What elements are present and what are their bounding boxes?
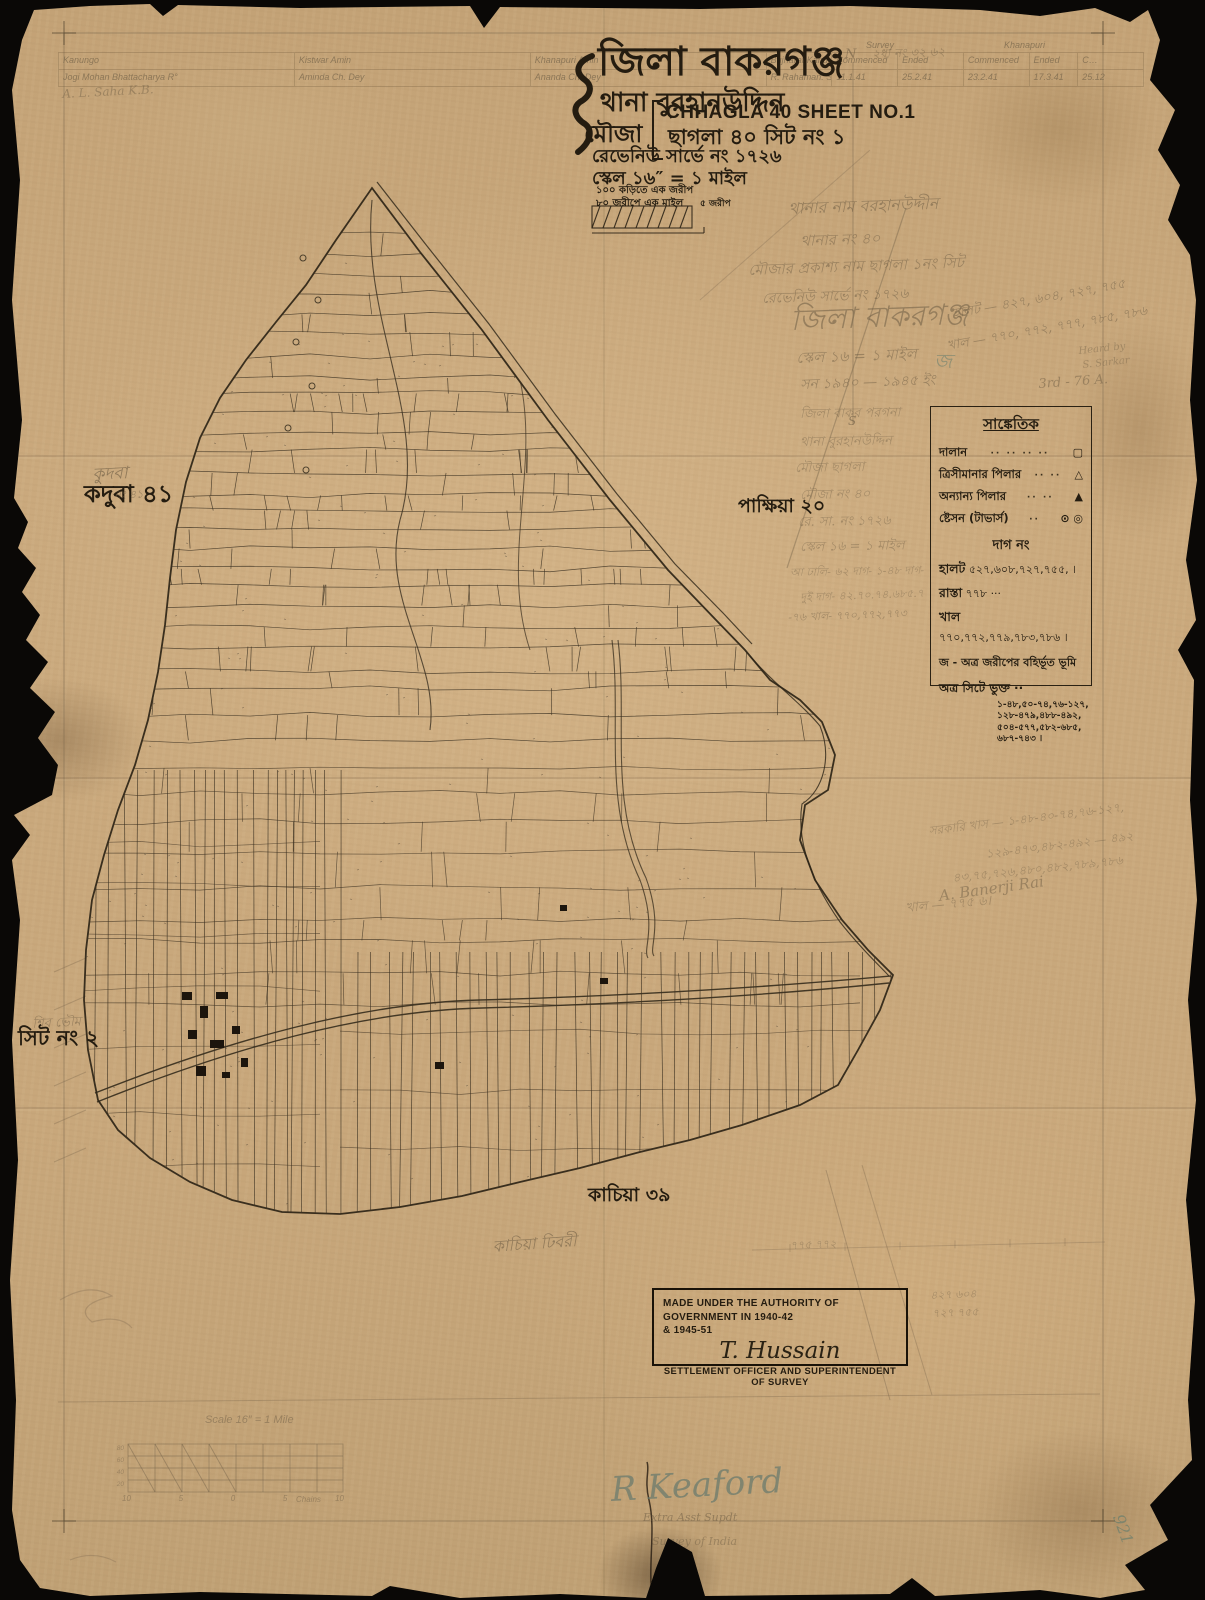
- conversion-line-2: ৮০ জরীপে এক মাইল: [596, 199, 683, 209]
- pencil-annotation: Heard by: [1078, 341, 1126, 357]
- legend-row: দালান ·· ·· ·· ·· ▢: [939, 444, 1083, 463]
- legend-note-j: জ - অত্র জরীপের বহির্ভূত ভূমি: [939, 654, 1083, 673]
- mouza-name-english: CHHAGLA 40 SHEET NO.1: [666, 103, 915, 122]
- scale-bottom-tick: 10: [122, 1494, 131, 1503]
- pencil-annotation: জিলা বাকরগঞ্জ: [790, 299, 969, 337]
- mouza-label: মৌজা: [584, 122, 642, 146]
- pencil-annotation: কাচিয়া ঢিবরী: [492, 1232, 577, 1255]
- legend-row-label: অন্যান্য পিলার: [939, 488, 1006, 507]
- age-stains: [0, 0, 1205, 1600]
- conversion-line-1: ১০০ কড়িতে এক জরীপ: [596, 186, 693, 196]
- legend-row-label: ষ্টেসন (টাভার্স): [939, 510, 1009, 529]
- legend-sheet-included-label: অত্র সিটে ভুক্ত ··: [939, 680, 1083, 700]
- legend-entry-value: ৭৭০,৭৭২,৭৭৯,৭৮৩,৭৮৬ ।: [939, 631, 1068, 644]
- surveyor-org: Survey of India: [652, 1536, 737, 1548]
- legend-row-symbol: ▲: [1075, 490, 1083, 503]
- legend-row-label: ত্রিসীমানার পিলার: [939, 466, 1021, 485]
- scale-left-tick: 20: [112, 1479, 124, 1491]
- legend-row-dots: ·· ··: [1021, 471, 1074, 481]
- district-title: জিলা বাকরগঞ্জ: [598, 42, 845, 82]
- pencil-annotation: মৌজা নং ৪০: [800, 488, 870, 504]
- table-value-cell: Aminda Ch. Dey: [294, 70, 530, 86]
- scale-left-tick: 40: [112, 1467, 124, 1479]
- table-value-cell: 23.2.41: [963, 70, 1029, 86]
- legend-title: সাঙ্কেতিক: [939, 413, 1083, 438]
- stamp-signature: T. Hussain: [663, 1338, 897, 1364]
- pencil-annotation: 3rd - 76 A.: [1038, 373, 1108, 392]
- scale-bottom-tick: 5: [283, 1494, 287, 1503]
- pencil-annotation: স্কেল ১৬ = ১ মাইল: [800, 539, 905, 555]
- legend-box: সাঙ্কেতিক দালান ·· ·· ·· ·· ▢ ত্রিসীমানা…: [930, 406, 1092, 686]
- legend-included-line: ৬৮৭-৭৪৩ ।: [997, 734, 1083, 745]
- pencil-annotation: স্কেল ১৬ = ১ মাইল: [796, 346, 917, 367]
- table-group-khanapuri: Khanapuri: [1004, 40, 1045, 50]
- pencil-annotation: 921: [1109, 1512, 1136, 1547]
- legend-row-symbol: △: [1075, 468, 1083, 481]
- pencil-annotation: থানার নাম বরহানউদ্দীন: [788, 195, 939, 218]
- legend-included-line: ৫০৪-৫৭৭,৫৮২-৬৮৫,: [997, 723, 1083, 734]
- pencil-annotation: দুই দাগ- ৪২.৭০.৭৪.৬৮৫.৭: [800, 588, 924, 604]
- legend-entry-value: ৫২৭,৬০৮,৭২৭,৭৫৫, ।: [969, 563, 1076, 576]
- neighbor-label-south: কাচিয়া ৩৯: [588, 1186, 671, 1205]
- legend-included-line: ১-৪৮,৫০-৭৪,৭৬-১২৭,: [997, 700, 1083, 711]
- pencil-annotation: থানার নং ৪০: [800, 230, 881, 249]
- pencil-annotation: ৪২৭ ৬০৪: [930, 1288, 977, 1302]
- table-header-cell: Commenced: [963, 53, 1029, 69]
- pencil-scale-title: Scale 16″ = 1 Mile: [205, 1414, 294, 1426]
- pencil-annotation: জিলা বাকর পরগনা: [800, 406, 901, 422]
- legend-entry-label: হালট: [939, 561, 965, 576]
- pencil-annotation: মৌজা ছাগলা: [795, 461, 865, 477]
- legend-entry-label: রাস্তা: [939, 585, 962, 600]
- stamp-line-3: SETTLEMENT OFFICER AND SUPERINTENDENT OF…: [663, 1365, 897, 1387]
- pencil-annotation: রে. সা. নং ১৭২৬: [798, 514, 891, 530]
- scanned-cadastral-map-sheet: Survey Khanapuri KanungoKistwar AminKhan…: [0, 0, 1205, 1600]
- pencil-annotation: ৭৭৫ ৭৭২: [790, 1238, 837, 1252]
- scale-bottom-tick: 5: [179, 1494, 183, 1503]
- pencil-annotation: আ ঢালি- ৬২ দাগ- ১-৪৮ দাগ-: [790, 565, 924, 579]
- pencil-annotation: -৭৬ খাল- ৭৭০,৭৭২,৭৭৩: [788, 608, 907, 624]
- legend-entry: হালট ৫২৭,৬০৮,৭২৭,৭৫৫, ।: [939, 561, 1083, 581]
- legend-row-dots: ·· ··: [1006, 493, 1075, 503]
- table-header-cell: Kistwar Amin: [294, 53, 530, 69]
- pencil-annotation: সন ১৯৪০ — ১৯৪৫ ইং: [800, 373, 936, 393]
- pencil-annotation: মৌজার প্রকাশ্য নাম ছাগলা ১নং সিট: [748, 254, 964, 278]
- legend-symbol-rows: দালান ·· ·· ·· ·· ▢ ত্রিসীমানার পিলার ··…: [939, 444, 1083, 529]
- surveyor-signature: R Keaford: [610, 1463, 784, 1509]
- legend-entry-label: খাল: [939, 609, 960, 624]
- surveyor-role: Extra Asst Supdt: [643, 1512, 737, 1524]
- table-value-cell: 25.12: [1077, 70, 1144, 86]
- stamp-line-1: MADE UNDER THE AUTHORITY OF GOVERNMENT I…: [663, 1297, 897, 1324]
- pencil-annotation: থানা বুরহানউদ্দিন: [800, 434, 892, 450]
- legend-row-dots: ··: [1009, 515, 1061, 525]
- scale-bottom-tick: 10: [335, 1494, 344, 1503]
- table-header-cell: C…: [1077, 53, 1144, 69]
- legend-included-line: ১২৮-৪৭৯,৪৮৮-৪৯২,: [997, 711, 1083, 722]
- scale-left-tick: 60: [112, 1455, 124, 1467]
- pencil-annotation: S. Sarkar: [1082, 355, 1130, 371]
- legend-sheet-included-lines: ১-৪৮,৫০-৭৪,৭৬-১২৭,১২৮-৪৭৯,৪৮৮-৪৯২,৫০৪-৫৭…: [997, 700, 1083, 745]
- scale-bottom-tick: 0: [231, 1494, 235, 1503]
- legend-row: ত্রিসীমানার পিলার ·· ·· △: [939, 466, 1083, 485]
- table-header-cell: Ended: [1029, 53, 1078, 69]
- legend-row-symbol: ▢: [1073, 446, 1083, 459]
- table-header-cell: Kanungo: [58, 53, 294, 69]
- pencil-annotation: জ: [934, 350, 952, 372]
- stamp-line-2: & 1945-51: [663, 1324, 897, 1338]
- pencil-annotation: ৭২৭ ৭৫৫: [932, 1306, 979, 1320]
- authority-stamp-box: MADE UNDER THE AUTHORITY OF GOVERNMENT I…: [652, 1288, 908, 1366]
- map-drawing: [0, 0, 1205, 1600]
- revenue-survey-no: রেভেনিউ সার্ভে নং ১৭২৬: [592, 148, 782, 166]
- legend-entry: রাস্তা ৭৭৮ ···: [939, 585, 1083, 605]
- pencil-annotation: A. L. Saha K.B.: [62, 83, 154, 101]
- legend-row-dots: ·· ·· ·· ··: [967, 449, 1072, 459]
- scalebar-label: ৫ জরীপ: [700, 200, 731, 209]
- table-value-cell: 25.2.41: [897, 70, 963, 86]
- pencil-annotation: কুদবা: [92, 464, 128, 485]
- legend-entry-value: ৭৭৮ ···: [966, 587, 1001, 600]
- table-value-cell: 17.3.41: [1029, 70, 1078, 86]
- legend-row-label: দালান: [939, 444, 967, 463]
- neighbor-label-southwest: সিট নং ২: [18, 1028, 99, 1049]
- paper-sheet: Survey Khanapuri KanungoKistwar AminKhan…: [0, 0, 1205, 1600]
- legend-entries: হালট ৫২৭,৬০৮,৭২৭,৭৫৫, । রাস্তা ৭৭৮ ··· খ…: [939, 561, 1083, 648]
- legend-entry: খাল ৭৭০,৭৭২,৭৭৯,৭৮৩,৭৮৬ ।: [939, 609, 1083, 648]
- pencil-scale-unit: Chains: [296, 1495, 321, 1504]
- legend-row-symbol: ⊙ ◎: [1060, 512, 1083, 525]
- scale-left-tick: 80: [112, 1443, 124, 1455]
- pencil-annotation: শিব ভৌম: [32, 1015, 81, 1032]
- table-value-cell: Jogi Mohan Bhattacharya R°: [58, 70, 294, 86]
- legend-dag-heading: দাগ নং: [939, 536, 1083, 557]
- pencil-annotation: N: [845, 48, 856, 62]
- pencil-annotation: ২ধা নং ৩২ ৬২: [872, 45, 945, 61]
- pencil-annotation: নং ৪১: [114, 488, 144, 502]
- legend-row: অন্যান্য পিলার ·· ·· ▲: [939, 488, 1083, 507]
- pencil-scale-left-ticks: 80604020: [112, 1443, 124, 1491]
- legend-row: ষ্টেসন (টাভার্স) ·· ⊙ ◎: [939, 510, 1083, 529]
- mouza-name-bengali: ছাগলা ৪০ সিট নং ১: [668, 127, 845, 148]
